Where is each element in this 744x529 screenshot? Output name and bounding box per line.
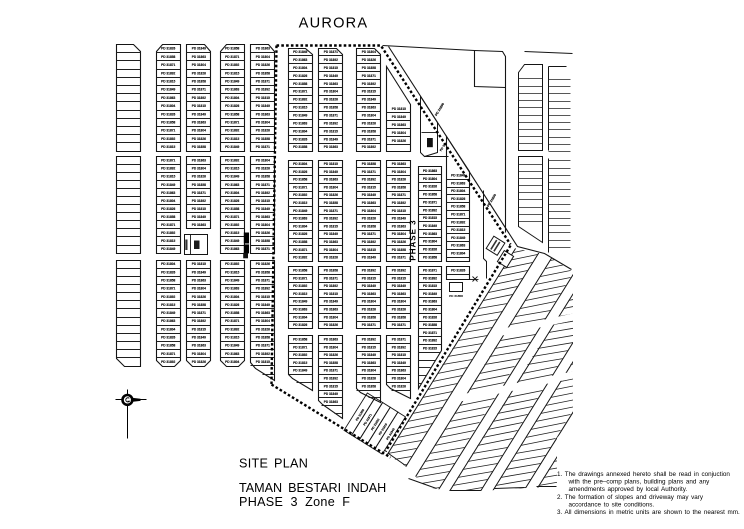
svg-text:PD 31863: PD 31863 — [423, 169, 437, 173]
svg-text:PD 31804: PD 31804 — [362, 209, 376, 213]
svg-text:PD 31871: PD 31871 — [293, 345, 307, 349]
svg-text:PD 31826: PD 31826 — [256, 129, 270, 133]
svg-text:PD 31826: PD 31826 — [256, 262, 270, 266]
svg-text:PD 31871: PD 31871 — [423, 331, 437, 335]
svg-text:PD 31849: PD 31849 — [392, 361, 406, 365]
svg-text:PD 31892: PD 31892 — [192, 96, 206, 100]
svg-text:PD 31815: PD 31815 — [161, 239, 175, 243]
svg-text:PD 31863: PD 31863 — [293, 58, 307, 62]
svg-text:PD 31826: PD 31826 — [362, 121, 376, 125]
svg-text:PD 31863: PD 31863 — [392, 369, 406, 373]
svg-text:PD 31871: PD 31871 — [293, 276, 307, 280]
svg-text:PD 31892: PD 31892 — [161, 360, 175, 364]
svg-text:PD 31804: PD 31804 — [293, 162, 307, 166]
svg-text:PD 31804: PD 31804 — [324, 345, 338, 349]
svg-text:PD 31863: PD 31863 — [423, 232, 437, 236]
svg-text:PD 31858: PD 31858 — [362, 162, 376, 166]
svg-text:PD 31871: PD 31871 — [293, 185, 307, 189]
svg-text:PD 31863: PD 31863 — [392, 224, 406, 228]
svg-text:PD 31858: PD 31858 — [192, 145, 206, 149]
svg-text:PD 31849: PD 31849 — [362, 353, 376, 357]
svg-text:PD 31858: PD 31858 — [192, 303, 206, 307]
svg-text:PD 31804: PD 31804 — [324, 90, 338, 94]
svg-text:PD 31863: PD 31863 — [225, 88, 239, 92]
svg-text:PD 31804: PD 31804 — [192, 63, 206, 67]
svg-text:PD 31863: PD 31863 — [225, 352, 239, 356]
svg-text:PD 31804: PD 31804 — [256, 223, 270, 227]
svg-text:PD 31858: PD 31858 — [256, 137, 270, 141]
svg-text:PD 31858: PD 31858 — [192, 80, 206, 84]
svg-text:PD 31804: PD 31804 — [256, 121, 270, 125]
svg-text:PD 31804: PD 31804 — [192, 129, 206, 133]
svg-text:PD 31826: PD 31826 — [392, 308, 406, 312]
svg-text:PD 31849: PD 31849 — [324, 300, 338, 304]
svg-text:PD 31815: PD 31815 — [392, 353, 406, 357]
svg-text:PD 31863: PD 31863 — [324, 240, 338, 244]
svg-text:PD 31849: PD 31849 — [451, 174, 465, 178]
svg-text:PD 31815: PD 31815 — [423, 284, 437, 288]
svg-text:PD 31871: PD 31871 — [324, 276, 338, 280]
svg-text:PD 31892: PD 31892 — [423, 208, 437, 212]
svg-text:PD 31826: PD 31826 — [324, 98, 338, 102]
svg-text:PD 31858: PD 31858 — [362, 129, 376, 133]
svg-text:PD 31892: PD 31892 — [293, 353, 307, 357]
svg-text:PD 31892: PD 31892 — [225, 223, 239, 227]
svg-text:PD 31863: PD 31863 — [324, 400, 338, 404]
svg-text:PD 31892: PD 31892 — [362, 240, 376, 244]
svg-text:PD 31858: PD 31858 — [293, 145, 307, 149]
svg-text:PD 31826: PD 31826 — [192, 71, 206, 75]
svg-text:PD 31871: PD 31871 — [423, 269, 437, 273]
svg-text:PD 31871: PD 31871 — [161, 223, 175, 227]
svg-text:PD 31871: PD 31871 — [192, 311, 206, 315]
svg-text:PD 31826: PD 31826 — [293, 170, 307, 174]
svg-text:2. The formation of slopes and: 2. The formation of slopes and driveway … — [557, 494, 704, 501]
svg-text:PD 31826: PD 31826 — [392, 240, 406, 244]
svg-text:PD 31849: PD 31849 — [293, 300, 307, 304]
svg-text:PD 31815: PD 31815 — [324, 224, 338, 228]
svg-text:PD 31815: PD 31815 — [161, 175, 175, 179]
svg-text:PD 31858: PD 31858 — [293, 338, 307, 342]
svg-text:PD 31815: PD 31815 — [362, 185, 376, 189]
svg-text:PD 31849: PD 31849 — [192, 47, 206, 51]
svg-text:PD 31815: PD 31815 — [423, 216, 437, 220]
svg-text:PD 31826: PD 31826 — [225, 199, 239, 203]
svg-text:PD 31849: PD 31849 — [225, 239, 239, 243]
svg-text:PD 31863: PD 31863 — [256, 47, 270, 51]
svg-text:PD 31804: PD 31804 — [423, 177, 437, 181]
svg-text:PD 31863: PD 31863 — [256, 112, 270, 116]
svg-text:PD 31804: PD 31804 — [293, 129, 307, 133]
svg-text:PD 31863: PD 31863 — [192, 279, 206, 283]
svg-text:PD 31826: PD 31826 — [392, 178, 406, 182]
svg-text:PD 31892: PD 31892 — [362, 82, 376, 86]
svg-text:PD 31815: PD 31815 — [324, 66, 338, 70]
svg-text:PD 31871: PD 31871 — [256, 247, 270, 251]
svg-text:PD 31804: PD 31804 — [392, 232, 406, 236]
svg-text:PD 31871: PD 31871 — [293, 248, 307, 252]
svg-text:PD 31826: PD 31826 — [161, 47, 175, 51]
svg-text:PD 31849: PD 31849 — [192, 215, 206, 219]
svg-text:PD 31863: PD 31863 — [324, 82, 338, 86]
svg-text:PD 31849: PD 31849 — [324, 232, 338, 236]
svg-text:PD 31871: PD 31871 — [392, 193, 406, 197]
svg-text:PD 31849: PD 31849 — [362, 256, 376, 260]
svg-text:PD 31863: PD 31863 — [392, 123, 406, 127]
svg-text:PD 31849: PD 31849 — [324, 74, 338, 78]
svg-text:PD 31804: PD 31804 — [392, 300, 406, 304]
svg-text:PD 31892: PD 31892 — [161, 295, 175, 299]
svg-text:PD 31863: PD 31863 — [225, 183, 239, 187]
svg-text:PD 31858: PD 31858 — [324, 361, 338, 365]
svg-text:PD 31858: PD 31858 — [256, 270, 270, 274]
svg-text:PD 31826: PD 31826 — [423, 248, 437, 252]
svg-text:PD 31849: PD 31849 — [256, 303, 270, 307]
svg-text:PD 31863: PD 31863 — [256, 311, 270, 315]
svg-text:PD 31849: PD 31849 — [161, 183, 175, 187]
svg-text:PD 31849: PD 31849 — [192, 270, 206, 274]
svg-text:PD 31804: PD 31804 — [451, 189, 465, 193]
svg-text:PD 31858: PD 31858 — [392, 185, 406, 189]
svg-text:PD 31863: PD 31863 — [225, 287, 239, 291]
svg-text:PD 31871: PD 31871 — [256, 145, 270, 149]
svg-text:PD 31815: PD 31815 — [225, 71, 239, 75]
svg-text:PD 31849: PD 31849 — [392, 115, 406, 119]
svg-text:PD 31863: PD 31863 — [362, 361, 376, 365]
svg-text:PD 31849: PD 31849 — [161, 88, 175, 92]
svg-text:PD 31826: PD 31826 — [451, 269, 465, 273]
svg-text:PD 31863: PD 31863 — [293, 121, 307, 125]
svg-text:PD 31804: PD 31804 — [161, 262, 175, 266]
svg-text:PD 31871: PD 31871 — [362, 74, 376, 78]
svg-text:PD 31871: PD 31871 — [362, 137, 376, 141]
svg-text:PD 31871: PD 31871 — [324, 50, 338, 54]
svg-text:PD 31804: PD 31804 — [362, 114, 376, 118]
svg-text:PD 31871: PD 31871 — [256, 344, 270, 348]
svg-text:PD 31892: PD 31892 — [324, 284, 338, 288]
svg-text:PD 31858: PD 31858 — [225, 47, 239, 51]
svg-text:PD 31849: PD 31849 — [324, 392, 338, 396]
svg-text:PD 31804: PD 31804 — [161, 327, 175, 331]
svg-text:PD 31858: PD 31858 — [362, 66, 376, 70]
svg-text:PD 31858: PD 31858 — [256, 239, 270, 243]
svg-text:PD 31892: PD 31892 — [362, 178, 376, 182]
svg-text:PD 31804: PD 31804 — [324, 248, 338, 252]
svg-text:PD 31863: PD 31863 — [423, 300, 437, 304]
svg-text:PD 31849: PD 31849 — [423, 224, 437, 228]
svg-text:PD 31804: PD 31804 — [161, 199, 175, 203]
svg-text:PD 31815: PD 31815 — [161, 80, 175, 84]
svg-text:PD 31826: PD 31826 — [362, 217, 376, 221]
svg-text:accordance to site conditions.: accordance to site conditions. — [569, 501, 655, 508]
svg-text:PD 31863: PD 31863 — [362, 292, 376, 296]
svg-text:PD 31804: PD 31804 — [362, 50, 376, 54]
svg-text:PD 31858: PD 31858 — [225, 311, 239, 315]
svg-text:PD 31826: PD 31826 — [161, 270, 175, 274]
svg-text:PD 31826: PD 31826 — [256, 167, 270, 171]
svg-text:PD 31815: PD 31815 — [392, 107, 406, 111]
svg-text:PD 31871: PD 31871 — [161, 63, 175, 67]
svg-text:PD 31815: PD 31815 — [161, 303, 175, 307]
svg-text:PD 31892: PD 31892 — [225, 327, 239, 331]
svg-text:PD 31892: PD 31892 — [225, 63, 239, 67]
svg-text:PD 31815: PD 31815 — [192, 207, 206, 211]
svg-text:PD 31815: PD 31815 — [192, 104, 206, 108]
svg-text:PD 31815: PD 31815 — [225, 167, 239, 171]
svg-text:PD 31804: PD 31804 — [392, 131, 406, 135]
svg-text:PD 31871: PD 31871 — [293, 90, 307, 94]
svg-text:PD 31849: PD 31849 — [293, 369, 307, 373]
svg-text:PD 31815: PD 31815 — [256, 295, 270, 299]
svg-text:with the pre–comp plans, build: with the pre–comp plans, building plans … — [568, 479, 711, 486]
svg-text:PD 31815: PD 31815 — [324, 292, 338, 296]
svg-text:PD 31858: PD 31858 — [362, 224, 376, 228]
svg-text:PD 31892: PD 31892 — [293, 284, 307, 288]
svg-text:PD 31804: PD 31804 — [324, 185, 338, 189]
svg-text:PD 31804: PD 31804 — [256, 319, 270, 323]
svg-text:SITE PLAN: SITE PLAN — [239, 457, 308, 471]
svg-text:PD 31804: PD 31804 — [362, 369, 376, 373]
svg-text:PD 31871: PD 31871 — [161, 287, 175, 291]
svg-text:PD 31849: PD 31849 — [225, 175, 239, 179]
svg-text:PD 31804: PD 31804 — [392, 377, 406, 381]
svg-text:PD 31871: PD 31871 — [362, 323, 376, 327]
svg-text:PD 31815: PD 31815 — [225, 336, 239, 340]
svg-text:PD 31815: PD 31815 — [192, 262, 206, 266]
svg-text:PD 31863: PD 31863 — [451, 244, 465, 248]
svg-text:PD 31815: PD 31815 — [225, 270, 239, 274]
svg-text:PD 31815: PD 31815 — [293, 361, 307, 365]
svg-text:amendments approved by local A: amendments approved by local Authority. — [569, 486, 688, 493]
svg-text:PD 31826: PD 31826 — [293, 74, 307, 78]
svg-text:PD 31858: PD 31858 — [362, 315, 376, 319]
svg-text:PD 31804: PD 31804 — [293, 66, 307, 70]
svg-text:PD 31871: PD 31871 — [423, 200, 437, 204]
svg-text:PD 31871: PD 31871 — [225, 121, 239, 125]
svg-text:PD 31849: PD 31849 — [392, 284, 406, 288]
svg-text:PD 31892: PD 31892 — [293, 256, 307, 260]
svg-text:PD 31863: PD 31863 — [161, 191, 175, 195]
svg-text:PD 31815: PD 31815 — [225, 137, 239, 141]
svg-text:PD 31863: PD 31863 — [161, 319, 175, 323]
svg-text:PD 31863: PD 31863 — [192, 159, 206, 163]
svg-text:PD 31826: PD 31826 — [293, 323, 307, 327]
svg-text:PD 31804: PD 31804 — [451, 252, 465, 256]
svg-text:PD 31815: PD 31815 — [256, 199, 270, 203]
svg-text:PD 31826: PD 31826 — [423, 185, 437, 189]
svg-text:PD 31858: PD 31858 — [362, 384, 376, 388]
svg-text:PD 31849: PD 31849 — [256, 104, 270, 108]
svg-text:PD 31826: PD 31826 — [256, 63, 270, 67]
svg-text:PD 31892: PD 31892 — [392, 269, 406, 273]
svg-text:PD 31804: PD 31804 — [256, 159, 270, 163]
svg-text:PD 31863: PD 31863 — [362, 201, 376, 205]
svg-text:PD 31804: PD 31804 — [225, 96, 239, 100]
svg-text:TAMAN BESTARI INDAH: TAMAN BESTARI INDAH — [239, 481, 386, 495]
svg-text:PD 31871: PD 31871 — [392, 338, 406, 342]
svg-text:PD 31804: PD 31804 — [324, 315, 338, 319]
svg-text:PD 31849: PD 31849 — [293, 114, 307, 118]
svg-text:PD 31892: PD 31892 — [423, 339, 437, 343]
svg-text:PD 31892: PD 31892 — [256, 352, 270, 356]
svg-text:PD 31804: PD 31804 — [192, 287, 206, 291]
svg-text:1. The drawings annexed hereto: 1. The drawings annexed hereto shall be … — [557, 471, 730, 478]
svg-text:PD 31892: PD 31892 — [324, 377, 338, 381]
svg-text:PD 31815: PD 31815 — [324, 129, 338, 133]
svg-text:PD 31815: PD 31815 — [392, 209, 406, 213]
svg-text:PD 31863: PD 31863 — [362, 106, 376, 110]
svg-text:PD 31804: PD 31804 — [225, 360, 239, 364]
svg-text:PD 31892: PD 31892 — [451, 220, 465, 224]
svg-text:PD 31858: PD 31858 — [293, 82, 307, 86]
svg-text:PD 31871: PD 31871 — [451, 213, 465, 217]
svg-text:PD 31892: PD 31892 — [324, 217, 338, 221]
svg-text:PD 31892: PD 31892 — [161, 71, 175, 75]
svg-text:PD 31863: PD 31863 — [392, 162, 406, 166]
svg-text:PD 31858: PD 31858 — [256, 336, 270, 340]
svg-text:PD 31804: PD 31804 — [392, 170, 406, 174]
svg-text:PD 31849: PD 31849 — [225, 344, 239, 348]
svg-text:PD 31871: PD 31871 — [256, 279, 270, 283]
svg-text:PD 31804: PD 31804 — [192, 352, 206, 356]
svg-text:PD 31871: PD 31871 — [192, 88, 206, 92]
svg-text:PD 31858: PD 31858 — [392, 315, 406, 319]
svg-text:PD 31892: PD 31892 — [392, 201, 406, 205]
svg-text:PD 31815: PD 31815 — [256, 96, 270, 100]
svg-text:PD 31858: PD 31858 — [449, 294, 463, 298]
svg-text:PD 31826: PD 31826 — [324, 193, 338, 197]
svg-text:PD 31858: PD 31858 — [256, 71, 270, 75]
svg-text:PD 31826: PD 31826 — [161, 112, 175, 116]
svg-text:PD 31892: PD 31892 — [161, 231, 175, 235]
svg-text:PD 31871: PD 31871 — [192, 191, 206, 195]
svg-text:PD 31892: PD 31892 — [423, 276, 437, 280]
svg-text:PD 31892: PD 31892 — [225, 129, 239, 133]
svg-text:PD 31815: PD 31815 — [324, 162, 338, 166]
svg-text:PD 31849: PD 31849 — [362, 193, 376, 197]
svg-text:PD 31804: PD 31804 — [423, 308, 437, 312]
svg-text:PD 31858: PD 31858 — [192, 183, 206, 187]
svg-text:PD 31892: PD 31892 — [324, 121, 338, 125]
svg-text:PD 31892: PD 31892 — [192, 199, 206, 203]
svg-text:PD 31804: PD 31804 — [161, 104, 175, 108]
svg-text:PD 31826: PD 31826 — [225, 303, 239, 307]
svg-text:PD 31815: PD 31815 — [293, 201, 307, 205]
svg-text:PD 31804: PD 31804 — [293, 224, 307, 228]
svg-text:PD 31826: PD 31826 — [392, 384, 406, 388]
svg-text:PD 31815: PD 31815 — [225, 231, 239, 235]
svg-text:PD 31858: PD 31858 — [161, 55, 175, 59]
svg-text:PD 31826: PD 31826 — [225, 104, 239, 108]
svg-text:PD 31826: PD 31826 — [161, 336, 175, 340]
svg-text:PD 31815: PD 31815 — [451, 228, 465, 232]
svg-text:PD 31858: PD 31858 — [161, 121, 175, 125]
svg-text:PD 31892: PD 31892 — [392, 345, 406, 349]
svg-text:PD 31849: PD 31849 — [225, 279, 239, 283]
svg-text:PD 31815: PD 31815 — [256, 360, 270, 364]
svg-text:PD 31863: PD 31863 — [324, 145, 338, 149]
svg-text:PD 31826: PD 31826 — [362, 377, 376, 381]
svg-text:PD 31858: PD 31858 — [293, 240, 307, 244]
svg-text:PD 31858: PD 31858 — [324, 269, 338, 273]
svg-text:PD 31826: PD 31826 — [256, 231, 270, 235]
svg-text:PD 31858: PD 31858 — [392, 248, 406, 252]
svg-text:PD 31826: PD 31826 — [423, 315, 437, 319]
svg-text:PD 31871: PD 31871 — [161, 352, 175, 356]
svg-text:PD 31826: PD 31826 — [362, 308, 376, 312]
svg-text:PD 31815: PD 31815 — [192, 327, 206, 331]
svg-text:PD 31804: PD 31804 — [192, 167, 206, 171]
svg-text:PD 31892: PD 31892 — [293, 193, 307, 197]
svg-text:PD 31871: PD 31871 — [256, 80, 270, 84]
svg-text:PD 31826: PD 31826 — [451, 197, 465, 201]
svg-text:AURORA: AURORA — [299, 16, 369, 32]
svg-text:PD 31804: PD 31804 — [423, 240, 437, 244]
svg-text:PD 31826: PD 31826 — [192, 360, 206, 364]
svg-text:PD 31804: PD 31804 — [225, 191, 239, 195]
svg-text:PD 31892: PD 31892 — [256, 287, 270, 291]
svg-text:PD 31858: PD 31858 — [293, 269, 307, 273]
svg-text:PD 31863: PD 31863 — [256, 215, 270, 219]
svg-text:PD 31849: PD 31849 — [192, 112, 206, 116]
svg-text:PD 31815: PD 31815 — [161, 145, 175, 149]
svg-text:PD 31849: PD 31849 — [451, 236, 465, 240]
svg-text:PD 31826: PD 31826 — [161, 207, 175, 211]
svg-text:PD 31849: PD 31849 — [293, 50, 307, 54]
svg-text:PD 31849: PD 31849 — [362, 284, 376, 288]
svg-text:PD 31826: PD 31826 — [293, 232, 307, 236]
svg-text:PD 31826: PD 31826 — [192, 295, 206, 299]
svg-text:PD 31871: PD 31871 — [392, 256, 406, 260]
svg-text:PD 31871: PD 31871 — [324, 369, 338, 373]
svg-text:PD 31892: PD 31892 — [256, 191, 270, 195]
svg-text:PD 31863: PD 31863 — [293, 217, 307, 221]
svg-text:PD 31858: PD 31858 — [451, 205, 465, 209]
svg-text:PD 31826: PD 31826 — [324, 256, 338, 260]
svg-text:PD 31892: PD 31892 — [293, 98, 307, 102]
svg-text:PD 31815: PD 31815 — [362, 90, 376, 94]
svg-text:PD 31871: PD 31871 — [362, 170, 376, 174]
svg-text:PD 31849: PD 31849 — [293, 209, 307, 213]
svg-text:PD 31849: PD 31849 — [225, 80, 239, 84]
svg-text:PD 31871: PD 31871 — [256, 183, 270, 187]
svg-text:PD 31871: PD 31871 — [362, 232, 376, 236]
svg-text:PD 31863: PD 31863 — [324, 178, 338, 182]
svg-text:PD 31892: PD 31892 — [161, 137, 175, 141]
svg-text:PD 31871: PD 31871 — [324, 114, 338, 118]
svg-text:PD 31849: PD 31849 — [324, 170, 338, 174]
svg-text:PD 31815: PD 31815 — [293, 292, 307, 296]
svg-text:PD 31849: PD 31849 — [392, 217, 406, 221]
svg-text:PD 31858: PD 31858 — [161, 279, 175, 283]
svg-text:PD 31815: PD 31815 — [362, 345, 376, 349]
svg-text:PD 31863: PD 31863 — [293, 308, 307, 312]
svg-text:3. All dimensions in metric un: 3. All dimensions in metric units are sh… — [557, 509, 740, 516]
svg-text:PD 31863: PD 31863 — [192, 121, 206, 125]
svg-text:PD 31863: PD 31863 — [192, 223, 206, 227]
svg-text:PD 31849: PD 31849 — [256, 207, 270, 211]
svg-text:PD 31849: PD 31849 — [161, 247, 175, 251]
svg-text:PD 31804: PD 31804 — [256, 55, 270, 59]
svg-text:PD 31892: PD 31892 — [225, 262, 239, 266]
svg-text:PD 31849: PD 31849 — [324, 137, 338, 141]
svg-text:PD 31892: PD 31892 — [324, 58, 338, 62]
svg-text:PD 31871: PD 31871 — [392, 323, 406, 327]
svg-text:PD 31863: PD 31863 — [225, 247, 239, 251]
svg-text:PD 31815: PD 31815 — [362, 248, 376, 252]
svg-text:PD 31871: PD 31871 — [225, 215, 239, 219]
svg-text:PD 31892: PD 31892 — [192, 319, 206, 323]
